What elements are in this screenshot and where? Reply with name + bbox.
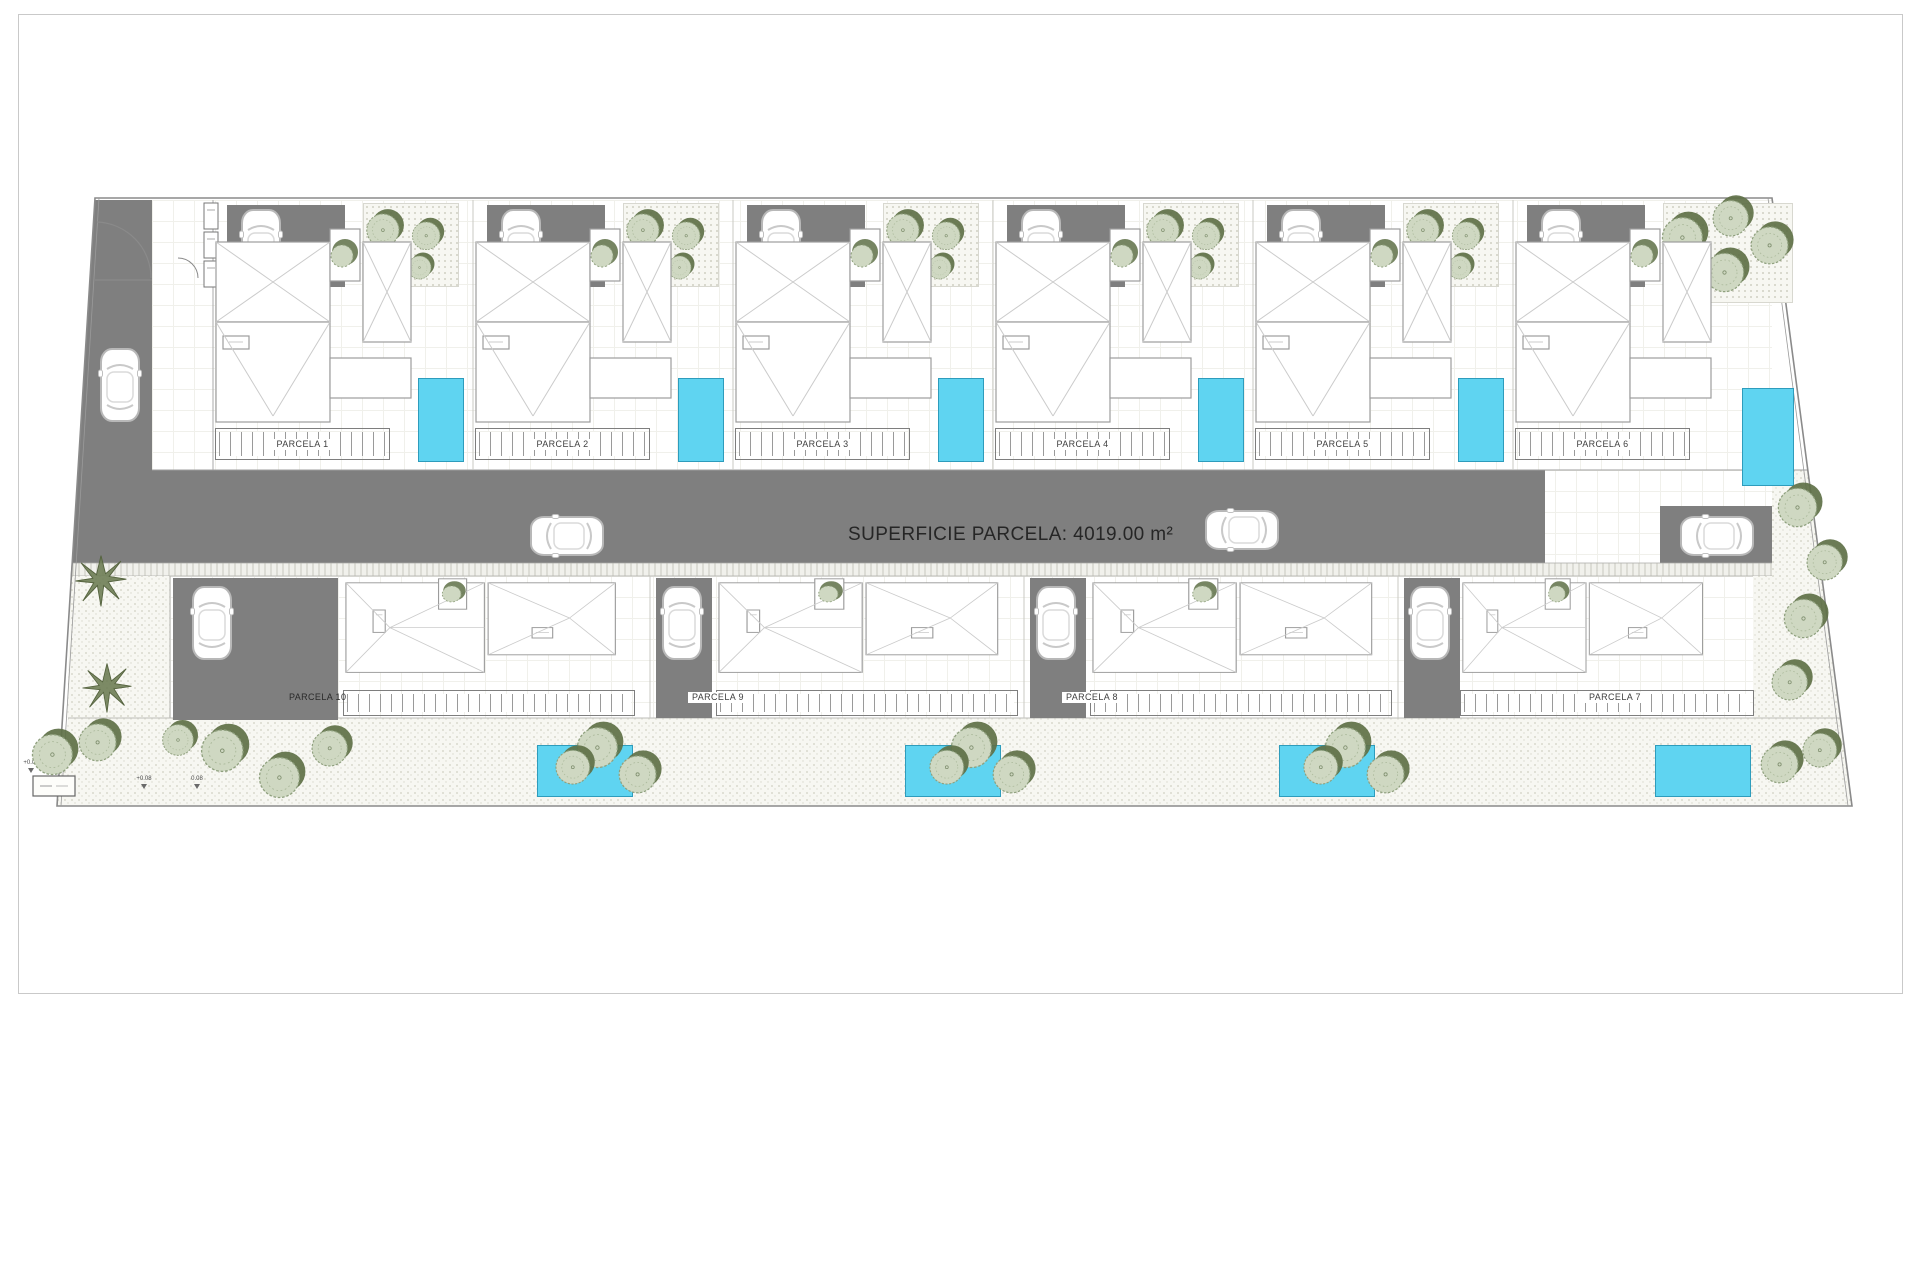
terrace-deck <box>716 690 1018 716</box>
tree-icon <box>1748 219 1796 267</box>
tree-icon <box>1301 743 1345 787</box>
road-area-label: SUPERFICIE PARCELA: 4019.00 m² <box>848 524 1173 546</box>
level-marker: +0.08 <box>131 776 157 792</box>
car-icon <box>1034 584 1078 662</box>
terrace-deck: PARCELA 6 <box>1515 428 1690 460</box>
swimming-pool <box>938 378 984 462</box>
parcel-label: PARCELA 10 <box>285 692 350 703</box>
car-icon <box>98 346 142 424</box>
tree-icon <box>1364 748 1412 796</box>
level-arrow-icon <box>194 784 200 792</box>
level-marker: 0.08 <box>184 776 210 792</box>
tree-icon <box>670 216 706 252</box>
villa-roof-plan <box>345 578 635 690</box>
tree-icon <box>198 721 252 775</box>
parcel-label: PARCELA 3 <box>793 439 853 450</box>
tree-icon <box>29 726 81 778</box>
tree-icon <box>1450 216 1486 252</box>
swimming-pool <box>1742 388 1794 486</box>
tree-icon <box>990 748 1038 796</box>
tree-icon <box>160 718 200 758</box>
terrace-deck <box>1090 690 1392 716</box>
villa-roof-plan <box>735 228 935 426</box>
tree-icon <box>1781 591 1831 641</box>
terrace-deck: PARCELA 1 <box>215 428 390 460</box>
site-plan-page: SUPERFICIE PARCELA: 4019.00 m² +0.08 +0.… <box>0 0 1920 1280</box>
villa-roof-plan <box>1255 228 1455 426</box>
tree-icon <box>1804 537 1850 583</box>
parcel-label: PARCELA 5 <box>1313 439 1373 450</box>
terrace-deck <box>343 690 635 716</box>
tree-icon <box>1775 480 1825 530</box>
swimming-pool <box>678 378 724 462</box>
parcel-label: PARCELA 6 <box>1573 439 1633 450</box>
tree-icon <box>1190 216 1226 252</box>
palm-tree-icon <box>72 552 130 610</box>
parcel-label: PARCELA 2 <box>533 439 593 450</box>
car-icon <box>1408 584 1452 662</box>
tree-icon <box>1758 738 1806 786</box>
parcel-label: PARCELA 7 <box>1585 692 1645 703</box>
car-icon <box>660 584 704 662</box>
sidewalk <box>71 563 1820 576</box>
villa-roof-plan <box>475 228 675 426</box>
car-icon <box>190 584 234 662</box>
car-icon <box>1203 508 1281 552</box>
level-value: 0.08 <box>191 776 203 782</box>
parcel-label: PARCELA 9 <box>688 692 748 703</box>
car-icon <box>528 514 606 558</box>
terrace-deck: PARCELA 4 <box>995 428 1170 460</box>
terrace-deck: PARCELA 2 <box>475 428 650 460</box>
terrace-deck: PARCELA 3 <box>735 428 910 460</box>
tree-icon <box>410 216 446 252</box>
villa-roof-plan <box>1515 228 1715 426</box>
tree-icon <box>616 748 664 796</box>
tree-icon <box>76 716 124 764</box>
villa-roof-plan <box>995 228 1195 426</box>
villa-roof-plan <box>1092 578 1392 690</box>
tree-icon <box>1769 657 1815 703</box>
terrace-deck: PARCELA 5 <box>1255 428 1430 460</box>
parcel-label: PARCELA 8 <box>1062 692 1122 703</box>
tree-icon <box>927 743 971 787</box>
level-value: +0.08 <box>136 776 151 782</box>
tree-icon <box>1800 726 1844 770</box>
tree-icon <box>553 743 597 787</box>
swimming-pool <box>418 378 464 462</box>
tree-icon <box>256 749 308 801</box>
site-entry-box <box>33 776 75 796</box>
swimming-pool <box>1198 378 1244 462</box>
villa-roof-plan <box>1462 578 1720 690</box>
swimming-pool <box>1458 378 1504 462</box>
swimming-pool <box>1655 745 1751 797</box>
villa-roof-plan <box>718 578 1018 690</box>
parcel-label: PARCELA 1 <box>273 439 333 450</box>
car-icon <box>1678 514 1756 558</box>
tree-icon <box>930 216 966 252</box>
palm-tree-icon <box>79 660 135 716</box>
villa-roof-plan <box>215 228 415 426</box>
level-arrow-icon <box>141 784 147 792</box>
tree-icon <box>309 723 355 769</box>
parcel-label: PARCELA 4 <box>1053 439 1113 450</box>
